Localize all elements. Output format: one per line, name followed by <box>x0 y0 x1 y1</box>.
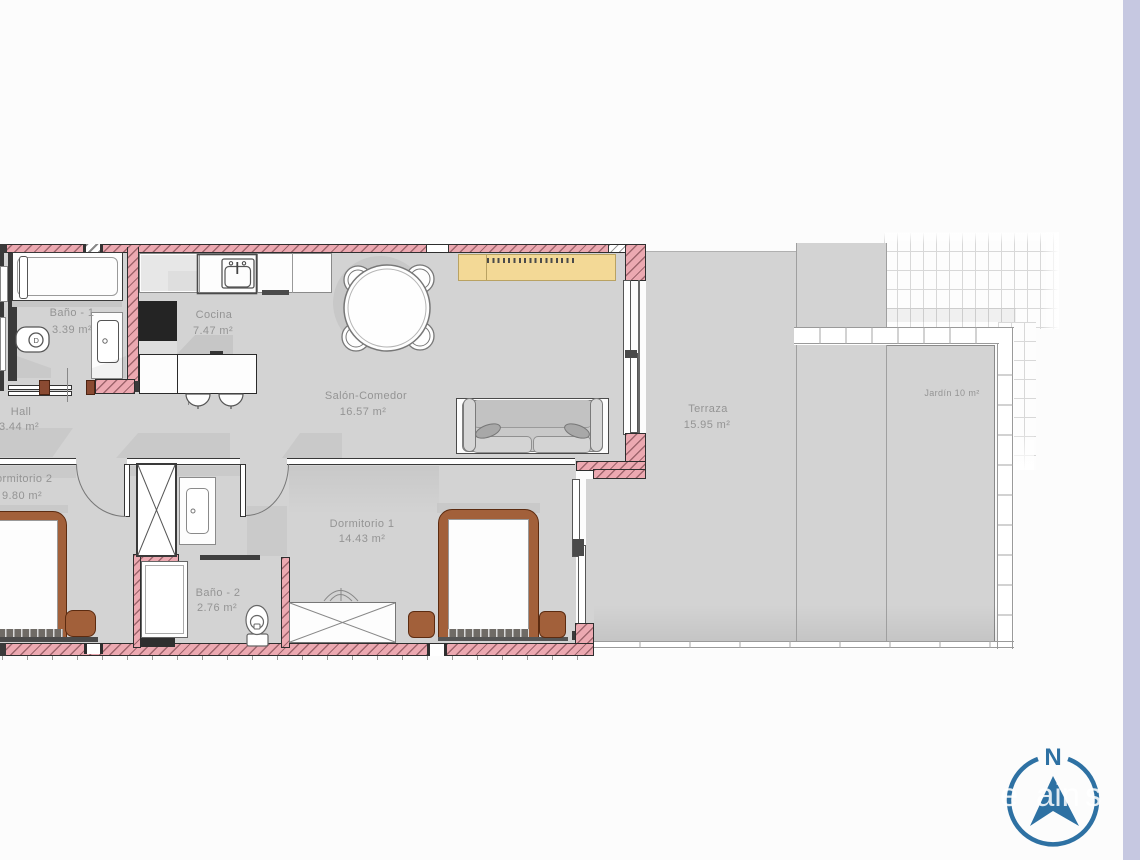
svg-text:D: D <box>34 336 40 345</box>
svg-text:e: e <box>1000 776 1018 813</box>
svg-text:ain: ain <box>1036 776 1080 813</box>
svg-text:N: N <box>1044 744 1061 771</box>
svg-text:s: s <box>1085 776 1102 813</box>
